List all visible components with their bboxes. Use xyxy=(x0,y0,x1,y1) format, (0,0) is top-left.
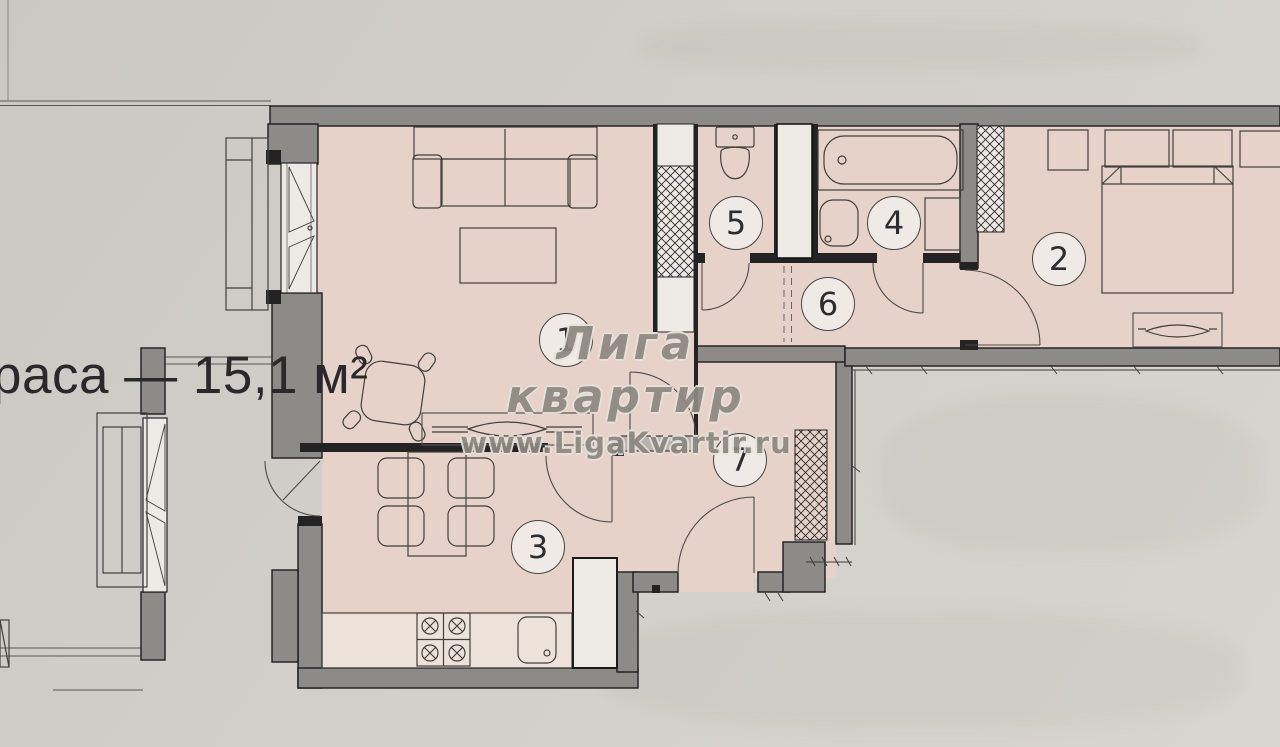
wall-terrace-corner xyxy=(272,570,298,662)
wall-top xyxy=(270,106,1280,126)
wall-bedroom-bottom xyxy=(845,348,1280,366)
room-number: 7 xyxy=(730,441,750,479)
terrace-side-table xyxy=(0,620,9,667)
terrace-bench-upper xyxy=(226,138,268,310)
vent-shaft-bedroom-icon xyxy=(977,126,1004,232)
utility-shaft xyxy=(777,124,812,258)
wall-kitchen-bottom xyxy=(298,668,638,688)
room-number: 4 xyxy=(884,204,904,242)
wall-entry-corner xyxy=(783,542,825,592)
living-hall-opening xyxy=(620,436,698,451)
room-number: 1 xyxy=(556,321,576,359)
hallway-area-west xyxy=(624,437,697,577)
wall-kitchen-left xyxy=(298,524,322,688)
room-label-wc: 5 xyxy=(709,196,763,250)
terrace-bench-lower xyxy=(97,413,147,587)
floor-plan-photo: 1 2 3 4 5 6 7 раса — 15,1 м² Лига кварти… xyxy=(0,0,1280,747)
room-number: 5 xyxy=(726,204,746,242)
wall-living-kitchen xyxy=(300,443,548,452)
room-number: 2 xyxy=(1049,240,1069,278)
wall-hall-top xyxy=(697,346,845,362)
room-label-bathroom: 4 xyxy=(867,196,921,250)
room-label-living: 1 xyxy=(539,313,593,367)
fridge-cabinet-icon xyxy=(573,558,617,668)
kitchen-counter xyxy=(322,613,572,668)
hall-closet-icon xyxy=(795,430,827,540)
room-number: 6 xyxy=(818,285,838,323)
room-label-bedroom: 2 xyxy=(1032,232,1086,286)
vent-shaft-living-icon xyxy=(657,166,694,277)
room-label-inner-hall: 6 xyxy=(801,277,855,331)
wall-hall-right xyxy=(836,358,852,544)
room-label-kitchen: 3 xyxy=(511,520,565,574)
wall-terrace-window-bottom xyxy=(141,592,165,660)
entry-gap-area xyxy=(678,577,754,592)
room-label-hallway: 7 xyxy=(713,433,767,487)
window-living-icon xyxy=(281,163,317,293)
room-number: 3 xyxy=(528,528,548,566)
terrace-door-icon xyxy=(265,461,320,516)
stove-icon xyxy=(417,613,470,666)
terrace-area-label: раса — 15,1 м² xyxy=(0,345,368,406)
